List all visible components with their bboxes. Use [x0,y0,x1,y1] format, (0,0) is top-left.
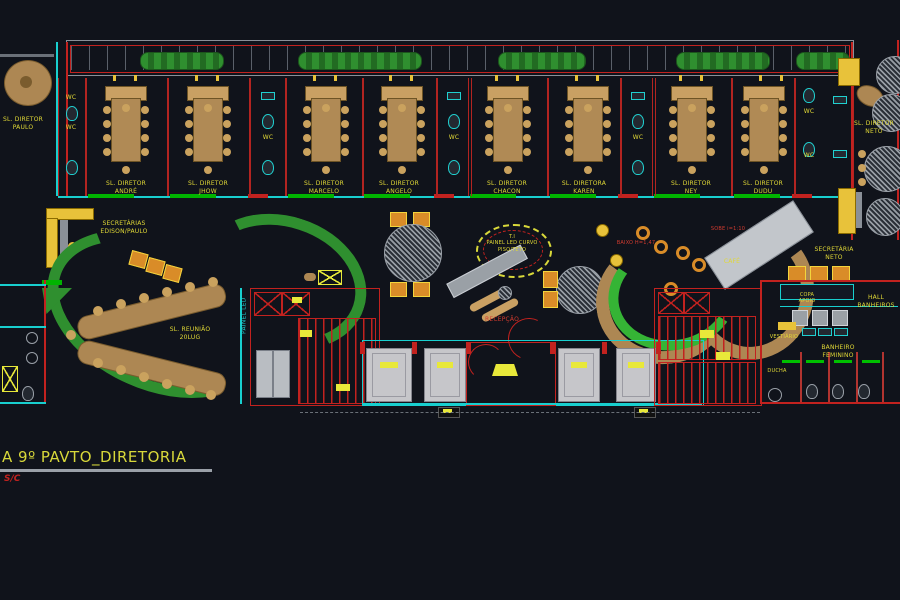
armchair-icon [390,282,407,297]
title-underline [0,469,212,472]
floor-plan-canvas: SL. DIRETOR ANDRÉ SL. DIRETOR JHOW SL. D… [0,0,900,600]
door-icon [495,75,519,81]
chairs [122,104,130,112]
wc-room [794,78,854,196]
wall-segment [0,326,46,328]
tag [492,364,518,376]
armchair-icon [810,266,828,281]
door-icon [679,75,703,81]
round-table [866,198,900,236]
ramp-up-label: SOBE i=1:10 [700,226,756,232]
wc-label: WC [437,134,471,142]
wc-label: WC [58,94,84,102]
panel-led-label: PAINEL LED [240,286,248,346]
room-label-recepcao: RECEPÇÃO [474,316,530,324]
door-jamb [360,342,365,354]
elevator-car [366,348,412,402]
armchair-icon [543,291,558,308]
tag [437,362,453,368]
tag [700,330,714,338]
toilet-icon [66,160,78,175]
drawing-scale: S/C [4,475,20,484]
chairs [322,104,330,112]
toilet-icon [632,114,644,129]
cafe-chair-icon [692,258,706,272]
planter-icon [676,52,770,70]
room-label-copa: COPA APOIO [792,292,822,305]
sink-icon [833,96,847,104]
shaft [658,292,684,314]
dimension-line [300,412,760,413]
wall-segment [760,280,900,282]
office-dudu [732,78,796,196]
planter-icon [298,52,422,70]
desk [0,54,54,57]
wall-segment [44,280,46,404]
elevator-cab [372,353,406,397]
chairs [584,104,592,112]
wc-room: WC [250,78,286,196]
door-icon [759,75,783,81]
toilet-icon [448,114,460,129]
wc-label: WC [796,152,822,160]
wall-segment [56,42,58,196]
sink-icon [818,328,832,336]
desk [838,188,856,234]
sink-icon [447,92,461,100]
sink-icon [834,328,848,336]
wc-label: WC [58,124,84,132]
drawing-title: A 9º PAVTO_DIRETORIA [2,449,186,466]
tag [716,352,730,360]
planter-icon [140,52,224,70]
room-label-paulo: SL. DIRETOR PAULO [0,116,46,131]
toilet-icon [262,114,274,129]
room-label-banheiro-fem: BANHEIRO FEMININO [812,344,864,359]
stall-wall [800,352,802,404]
chairs [858,150,866,158]
sink-icon [261,92,275,100]
sink-icon [631,92,645,100]
round-table [864,146,900,192]
stall-wall [882,352,884,404]
elevator-cab [430,353,460,397]
shower-icon [768,388,782,402]
side-table [318,270,342,285]
appliance [812,310,828,326]
toilet-icon [632,160,644,175]
room-label-secretarias: SECRETÁRIAS EDISON/PAULO [96,220,152,235]
door-panel [256,350,273,398]
door-icon [113,75,137,81]
elevator-car [558,348,600,402]
room-label-reuniao: SL. REUNIÃO 20LUG [150,326,230,341]
wc-label: WC [621,134,655,142]
room-label-neto: SL. DIRETOR NETO [850,120,898,135]
room-label-karen: SL. DIRETORA KAREN [548,180,620,195]
wall-segment [0,284,46,286]
toilet-icon [832,384,844,399]
wc-room: WC [620,78,656,196]
toilet-icon [858,384,870,399]
shaft [684,292,710,314]
chairs [398,104,406,112]
desk [856,192,862,228]
tag [628,362,643,368]
room-label-hall: HALL BANHEIROS [854,294,898,309]
sink-icon [802,328,816,336]
stall-wall [828,352,830,404]
office-karen [548,78,622,196]
door-icon [389,75,413,81]
wall-segment [362,403,702,405]
bench [304,273,316,281]
room-label-secretaria-neto: SECRETÁRIA NETO [808,246,860,261]
chairs [504,104,512,112]
toilet-icon [448,160,460,175]
shaft [254,292,282,316]
cafe-chair-icon [636,226,650,240]
office-jhow [168,78,250,196]
stall-door [862,360,880,363]
door-icon [575,75,599,81]
round-table [876,56,900,94]
office-chacon [468,78,548,196]
sink-icon [833,150,847,158]
fixture [26,332,38,344]
fixture [26,352,38,364]
armchair-icon [413,282,430,297]
pouf-icon [610,254,623,267]
appliance [832,310,848,326]
toilet-icon [262,160,274,175]
door-panel [273,350,290,398]
toilet-icon [66,106,78,121]
office-ney [652,78,732,196]
tag [300,330,312,337]
door-icon [195,75,219,81]
room-label-jhow: SL. DIRETOR JHOW [168,180,248,195]
lounge-chair [20,76,32,88]
stall-door [782,360,800,363]
office-angelo [362,78,438,196]
chairs [760,104,768,112]
room-label-ducha: DUCHA [760,368,794,374]
door-icon [313,75,337,81]
elevator-cab [564,353,594,397]
stall-door [834,360,852,363]
armchair-icon [543,271,558,288]
armchair-icon [832,266,850,281]
room-label-andre: SL. DIRETOR ANDRÉ [86,180,166,195]
room-label-cafe: CAFÉ [712,258,752,266]
planter-icon [498,52,586,70]
elevator-car [616,348,656,402]
cabinet [778,322,796,330]
stair-treads [658,316,756,360]
round-table [384,224,442,282]
wc-label: WC [251,134,285,142]
room-label-ney: SL. DIRETOR NEY [652,180,730,195]
elevator-cab [622,353,650,397]
wall-segment [760,402,900,404]
room-label-ti: T.I PAINEL LED CURVO PISO/TETO [468,234,556,253]
room-label-angelo: SL. DIRETOR ANGELO [362,180,436,195]
door-jamb [602,342,607,354]
toilet-icon [22,386,34,401]
elevator-car [424,348,466,402]
tag [571,362,587,368]
wc-label: WC [796,108,822,116]
wall-segment [0,402,46,404]
stair-treads [658,362,756,404]
tag [380,362,398,368]
chairs [688,104,696,112]
armchair-icon [788,266,806,281]
tag [336,384,350,391]
office-marcelo [286,78,364,196]
room-label-dudu: SL. DIRETOR DUDU [732,180,794,195]
door-jamb [412,342,417,354]
toilet-icon [806,384,818,399]
room-label-marcelo: SL. DIRETOR MARCELO [286,180,362,195]
pouf-icon [596,224,609,237]
office-andre [86,78,168,196]
ramp-down-label: BAIXO H=1,47 [606,240,666,246]
shaft [282,292,310,316]
tag [292,297,302,303]
stall-wall [856,352,858,404]
cabinet [2,366,18,392]
stall-door [806,360,824,363]
cabinet [838,58,860,86]
cafe-chair-icon [676,246,690,260]
chairs [66,330,76,340]
receptionist-chair [498,286,512,300]
room-label-vestiario: VESTIÁRIO [764,334,804,340]
chairs [204,104,212,112]
toilet-icon [803,88,815,103]
wc-room: WC [436,78,472,196]
room-label-chacon: SL. DIRETOR CHACON [468,180,546,195]
